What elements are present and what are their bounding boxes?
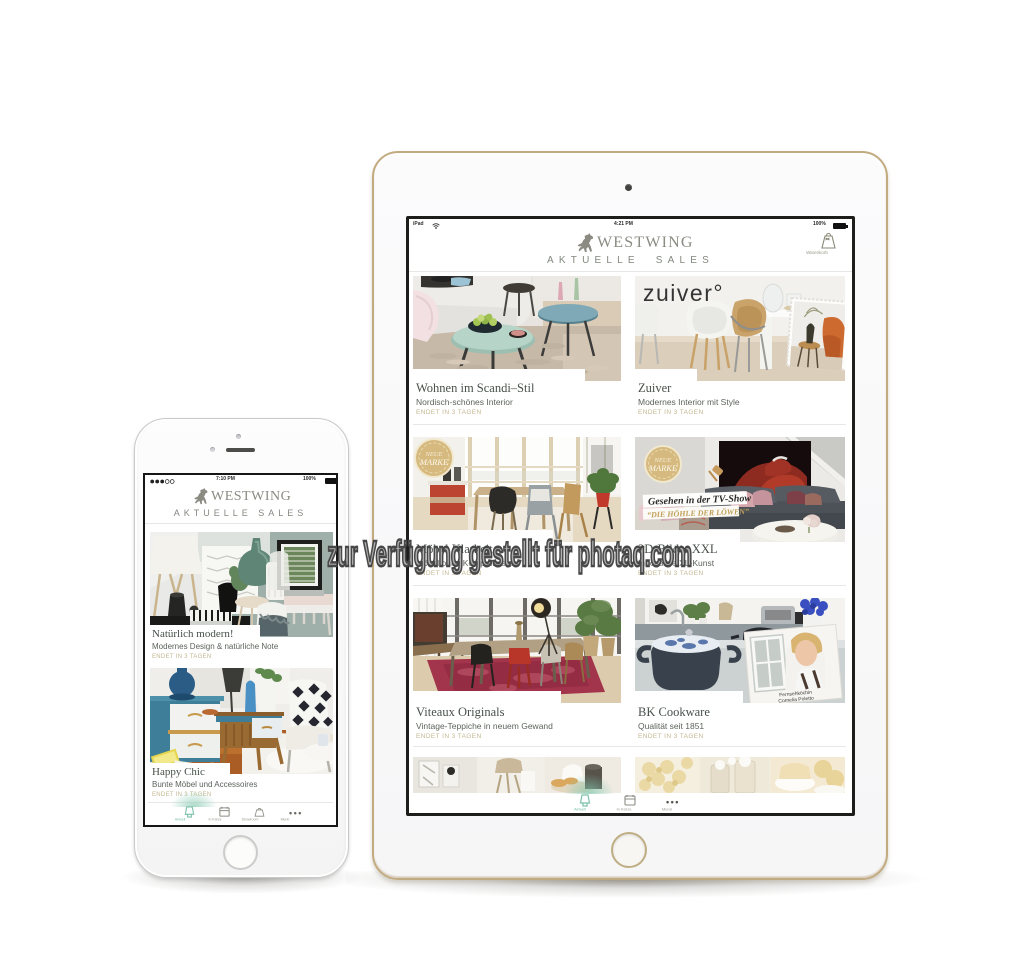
- svg-text:MARKE: MARKE: [648, 463, 678, 473]
- svg-text:zuiver°: zuiver°: [643, 280, 724, 306]
- svg-text:MARKE: MARKE: [419, 457, 449, 467]
